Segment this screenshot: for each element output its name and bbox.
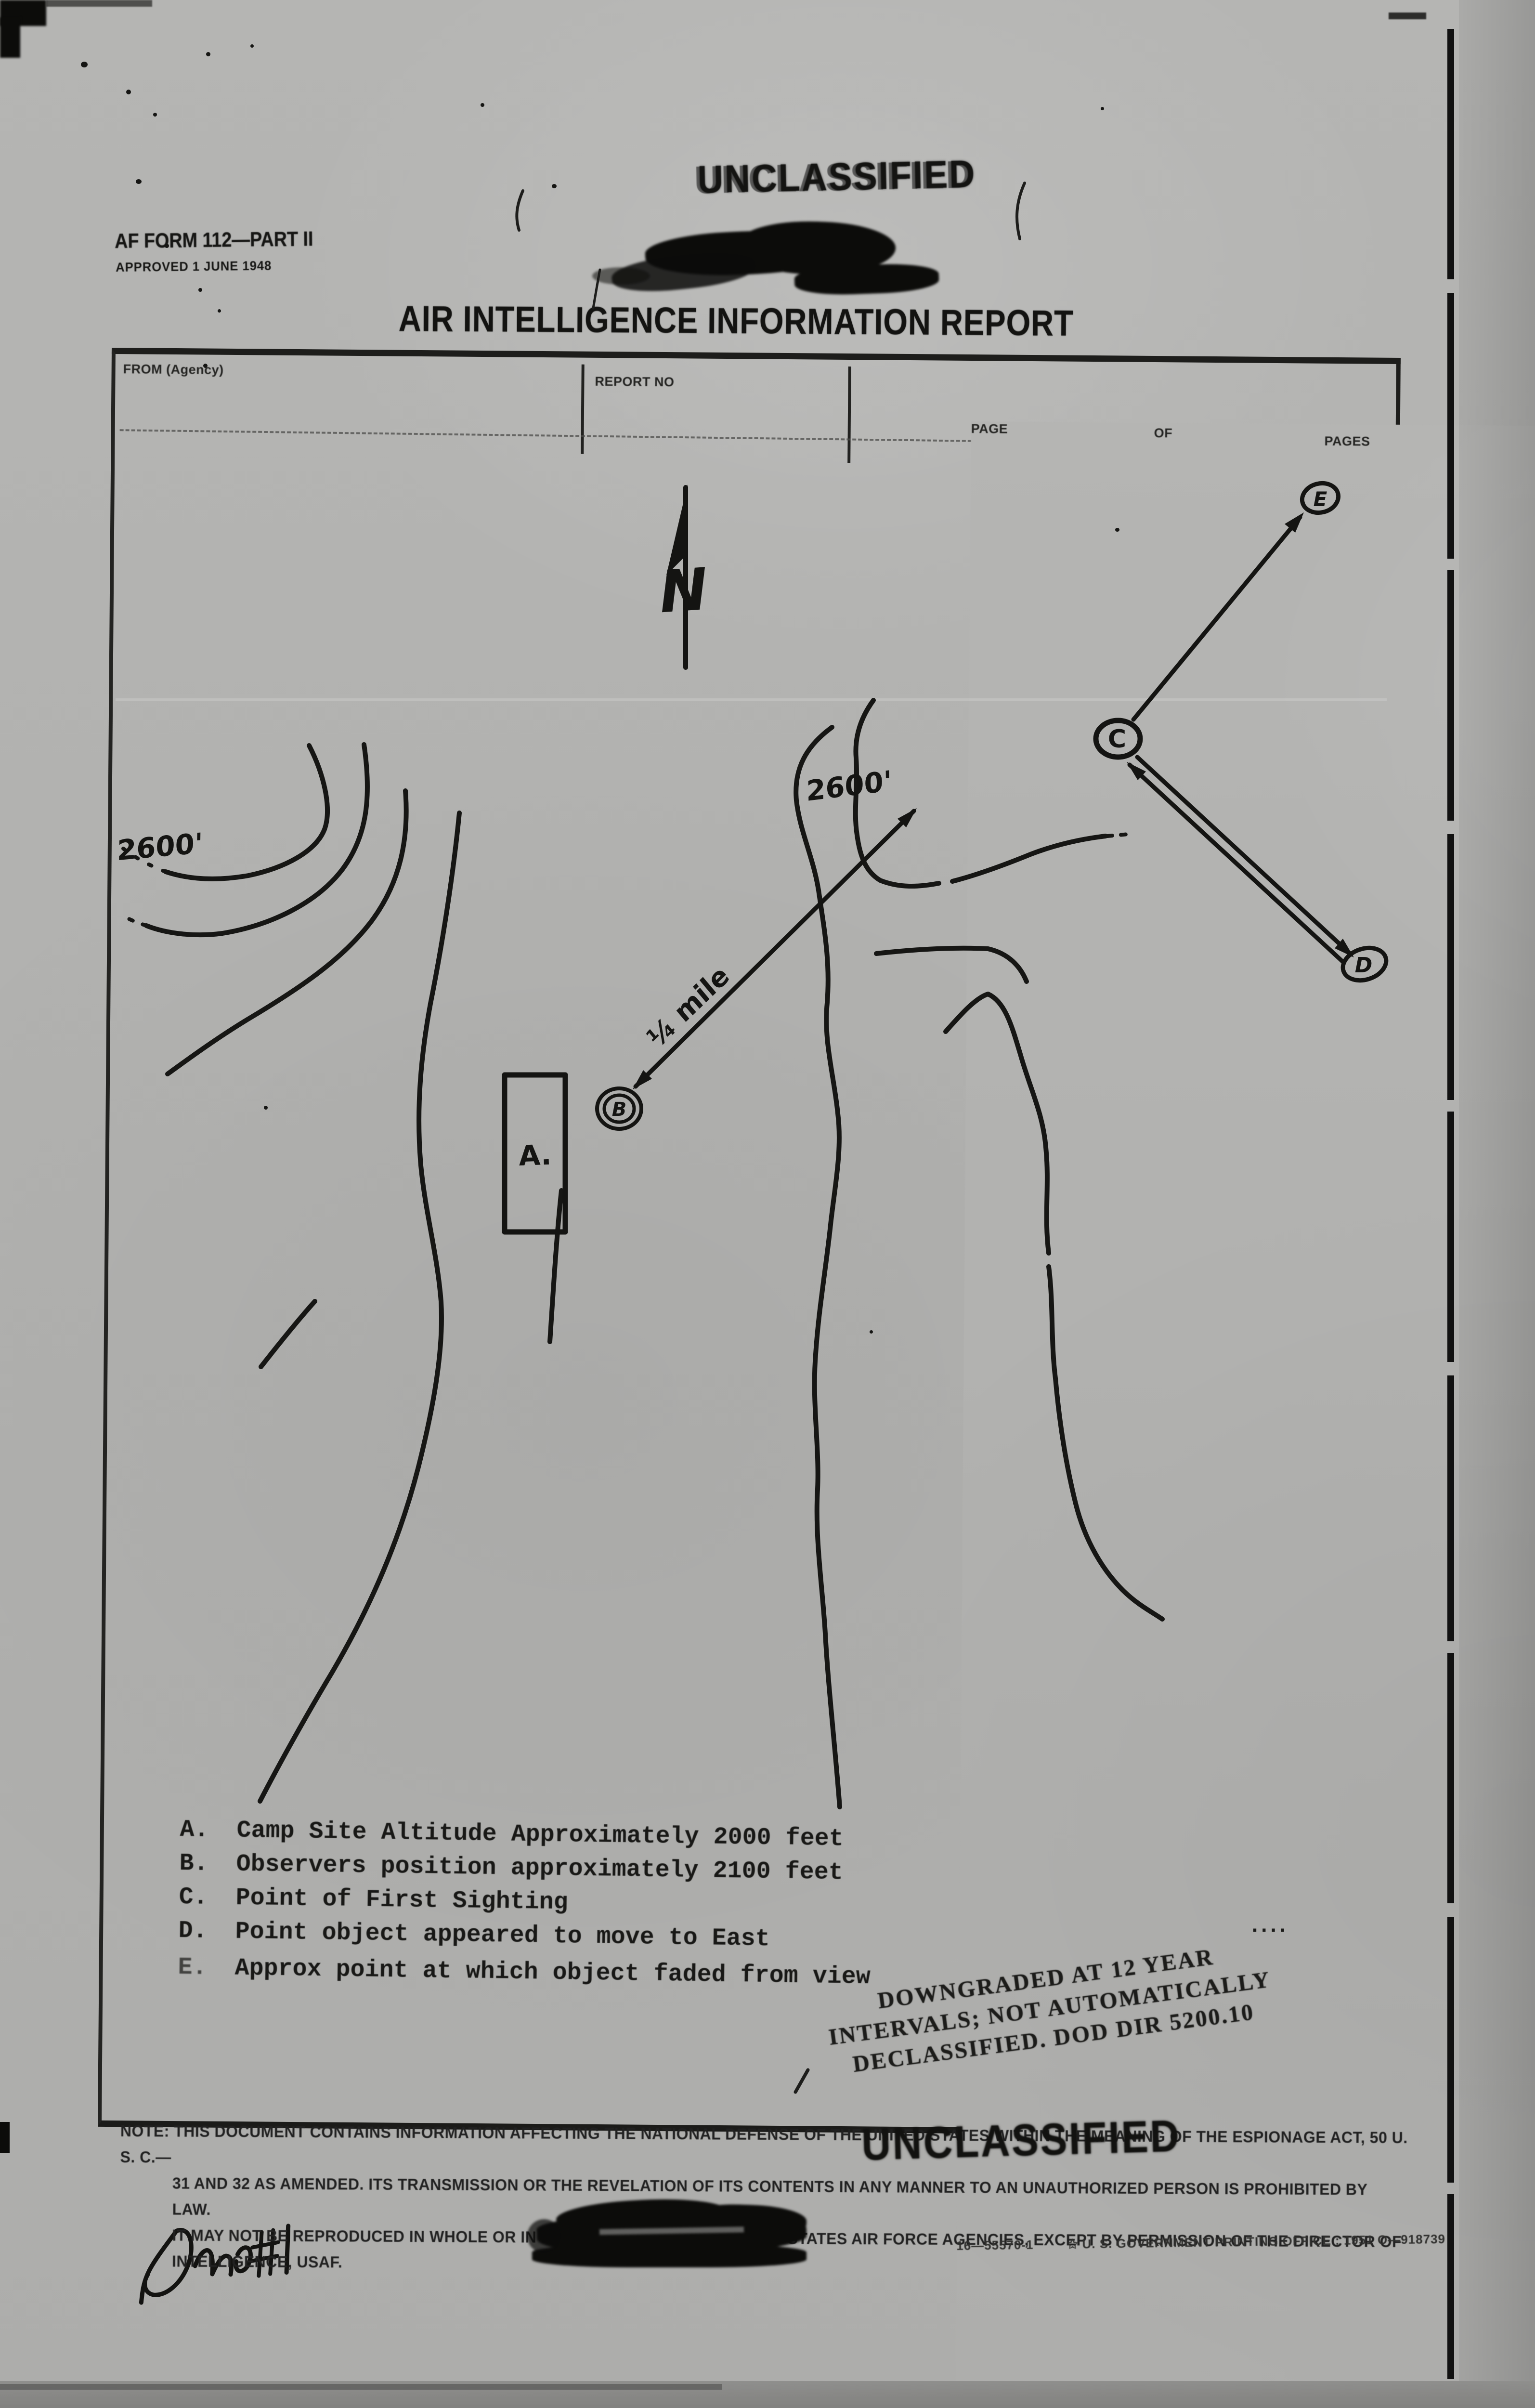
stray-mark xyxy=(593,270,600,308)
stray-mark xyxy=(1017,183,1025,239)
contour-line xyxy=(1107,834,1129,836)
scan-edge-mark xyxy=(0,2122,10,2153)
camp-site-label: A. xyxy=(518,1139,552,1172)
scanned-document-page: UNCLASSIFIED AF FORM 112—PART II APPROVE… xyxy=(0,0,1535,2408)
point-b-label: B xyxy=(612,1099,627,1121)
contour-line xyxy=(123,916,146,926)
map-legend: A. Camp Site Altitude Approximately 2000… xyxy=(178,1816,872,1997)
scan-edge-mark xyxy=(46,0,152,7)
contour-line xyxy=(260,813,459,1801)
contour-line xyxy=(1049,1267,1162,1619)
point-c-label: C xyxy=(1108,725,1126,754)
scan-edge-mark xyxy=(1389,13,1426,19)
print-number: 16—55570-1 xyxy=(956,2238,1034,2253)
legend-key: D. xyxy=(178,1917,235,1951)
redaction-blob-bottom xyxy=(527,2200,826,2277)
north-label: N xyxy=(657,556,710,627)
contour-line xyxy=(946,994,1049,1253)
classification-stamp-bottom: UNCLASSIFIED xyxy=(861,2110,1182,2171)
scan-right-margin xyxy=(1459,0,1535,2408)
legend-text: Point object appeared to move to East xyxy=(235,1918,770,1959)
elevation-label-left: 2600' xyxy=(117,826,203,867)
legend-text: Point of First Sighting xyxy=(235,1884,568,1923)
note-line1: NOTE: THIS DOCUMENT CONTAINS INFORMATION… xyxy=(120,2118,1409,2177)
contour-line xyxy=(261,1301,315,1367)
scan-edge-line xyxy=(1447,29,1454,2379)
path-c-to-d xyxy=(1127,757,1354,962)
legend-key: E. xyxy=(178,1953,235,1988)
path-c-to-e xyxy=(1133,512,1304,720)
contour-line xyxy=(550,1191,561,1342)
scale-label: ¼ mile xyxy=(642,959,735,1054)
stray-mark xyxy=(517,191,523,230)
sighting-map: N E C D xyxy=(0,0,1535,2408)
legend-key: B. xyxy=(179,1849,236,1884)
point-d-label: D xyxy=(1355,953,1373,978)
elevation-label-right: 2600' xyxy=(806,764,892,808)
point-e-label: E xyxy=(1314,487,1327,511)
legend-key: C. xyxy=(179,1883,236,1918)
scan-corner-blob xyxy=(0,17,20,58)
contour-line xyxy=(168,791,406,1074)
contour-line xyxy=(952,836,1106,881)
legend-key: A. xyxy=(180,1816,237,1850)
path-b-to-hill xyxy=(633,808,917,1089)
scan-bottom-line xyxy=(0,2384,722,2390)
contour-line xyxy=(876,948,1027,982)
